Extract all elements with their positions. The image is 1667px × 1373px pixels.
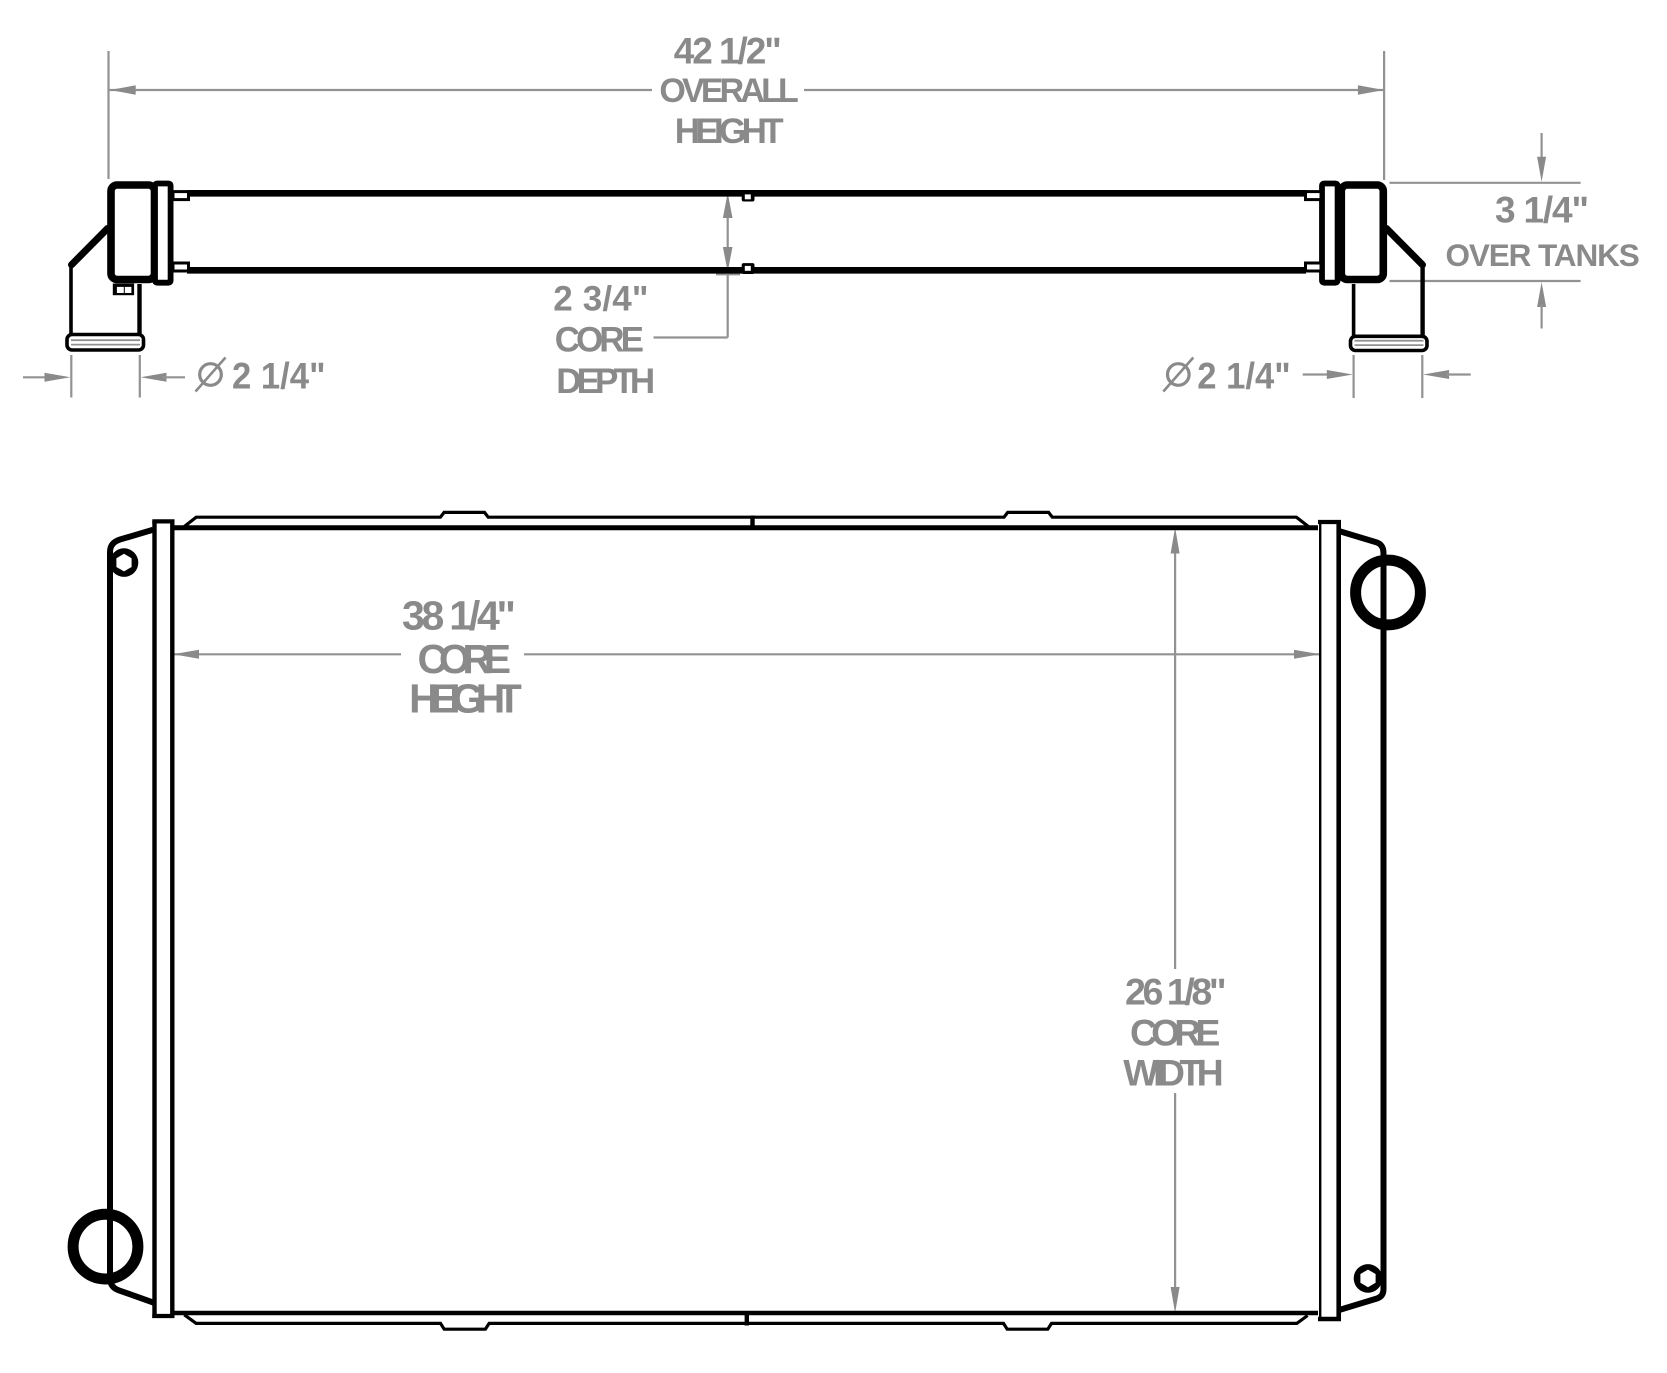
svg-text:OVER TANKS: OVER TANKS <box>1445 237 1639 273</box>
svg-text:2 1/4": 2 1/4" <box>232 356 326 397</box>
svg-text:CORE: CORE <box>555 321 644 360</box>
svg-text:CORE: CORE <box>1130 1012 1220 1054</box>
svg-text:DEPTH: DEPTH <box>556 362 655 401</box>
svg-text:HEIGHT: HEIGHT <box>675 112 784 151</box>
svg-text:3 1/4": 3 1/4" <box>1495 190 1589 231</box>
svg-text:2 3/4": 2 3/4" <box>553 280 648 319</box>
svg-text:HEIGHT: HEIGHT <box>409 675 522 721</box>
svg-text:26 1/8": 26 1/8" <box>1125 971 1227 1013</box>
svg-text:38 1/4": 38 1/4" <box>402 593 516 639</box>
svg-text:OVERALL: OVERALL <box>659 72 798 110</box>
svg-text:WIDTH: WIDTH <box>1123 1051 1223 1093</box>
svg-text:2 1/4": 2 1/4" <box>1197 356 1291 397</box>
svg-text:42 1/2": 42 1/2" <box>674 30 782 71</box>
